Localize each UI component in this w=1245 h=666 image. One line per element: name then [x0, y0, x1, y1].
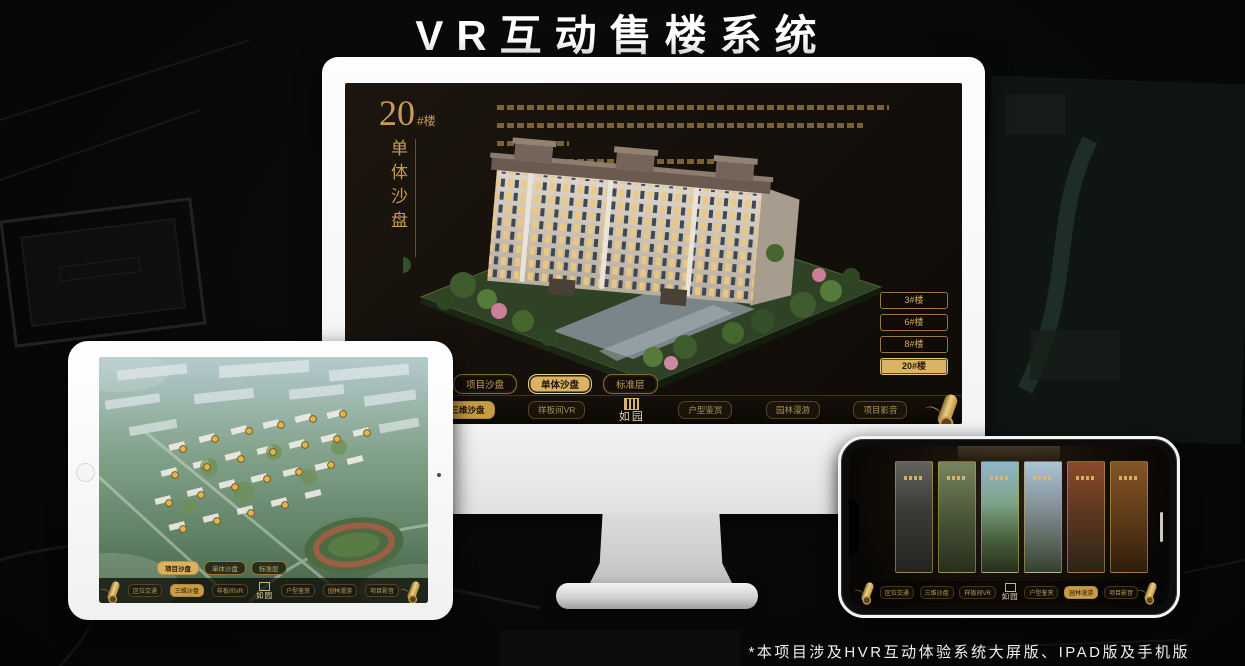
ipad-tab-standard-floor[interactable]: 标准层: [251, 561, 287, 575]
building-button-20[interactable]: 20#楼: [880, 358, 948, 375]
ipad-tab-project-sandtable[interactable]: 项目沙盘: [157, 561, 199, 575]
ipad-screen: 项目沙盘 单体沙盘 标准层 区位交通 三维沙盘 样板间VR 如园 户型鉴赏 园林…: [99, 357, 428, 603]
ipad-menu-bar: 区位交通 三维沙盘 样板间VR 如园 户型鉴赏 园林漫游 项目影音: [99, 578, 428, 603]
building-button-8[interactable]: 8#楼: [880, 336, 948, 353]
view-tabs: 项目沙盘 单体沙盘 标准层: [453, 374, 658, 394]
brand-logo: 如园: [256, 582, 273, 600]
brand-logo: 如园: [619, 398, 645, 423]
scroll-handle-icon[interactable]: [406, 580, 420, 601]
panel-caption: [947, 476, 967, 480]
ipad-menu-item-project-media[interactable]: 项目影音: [365, 584, 399, 597]
phone-notch: [849, 499, 859, 555]
menu-item-showflat-vr[interactable]: 样板间VR: [528, 401, 585, 419]
phone-menu-bar: 区位交通 三维沙盘 样板间VR 如园 户型鉴赏 园林漫游 项目影音: [857, 581, 1161, 603]
tab-standard-floor[interactable]: 标准层: [603, 374, 658, 394]
phone-menu-item-showflat-vr[interactable]: 样板间VR: [959, 586, 995, 599]
phone-device: 区位交通 三维沙盘 样板间VR 如园 户型鉴赏 园林漫游 项目影音: [838, 436, 1180, 618]
ipad-menu-item-3d-sandtable[interactable]: 三维沙盘: [170, 584, 204, 597]
gallery-panel[interactable]: [1024, 461, 1062, 573]
phone-home-indicator[interactable]: [1160, 512, 1163, 542]
building-button-3[interactable]: 3#楼: [880, 292, 948, 309]
scroll-handle-icon[interactable]: [860, 581, 874, 602]
tab-single-sandtable[interactable]: 单体沙盘: [528, 374, 592, 394]
building-selector: 3#楼 6#楼 8#楼 20#楼: [880, 292, 948, 375]
ipad-menu-item-garden-tour[interactable]: 园林漫游: [323, 584, 357, 597]
ipad-menu-item-location[interactable]: 区位交通: [128, 584, 162, 597]
panel-caption: [1033, 476, 1053, 480]
building-3d-render[interactable]: [403, 125, 893, 395]
scroll-handle-icon[interactable]: [1143, 581, 1157, 602]
ipad-tab-single-sandtable[interactable]: 单体沙盘: [204, 561, 246, 575]
gallery-panel[interactable]: [981, 461, 1019, 573]
scroll-handle-icon[interactable]: [936, 393, 959, 424]
brand-logo-text: 如园: [256, 592, 273, 600]
phone-screen: 区位交通 三维沙盘 样板间VR 如园 户型鉴赏 园林漫游 项目影音: [849, 446, 1169, 608]
monitor-stand-neck: [588, 513, 734, 587]
page: VR互动售楼系统 20#楼 单体沙盘: [0, 0, 1245, 666]
menu-item-floorplans[interactable]: 户型鉴赏: [678, 401, 732, 419]
brand-logo-text: 如园: [619, 412, 645, 423]
phone-menu-item-floorplans[interactable]: 户型鉴赏: [1024, 586, 1058, 599]
building-button-6[interactable]: 6#楼: [880, 314, 948, 331]
panel-caption: [904, 476, 924, 480]
menu-item-project-media[interactable]: 项目影音: [853, 401, 907, 419]
panel-caption: [990, 476, 1010, 480]
brand-seal-icon: [624, 398, 639, 410]
brand-seal-icon: [1005, 583, 1016, 592]
gallery-panel[interactable]: [1110, 461, 1148, 573]
panel-caption: [1119, 476, 1139, 480]
gallery-panel[interactable]: [1067, 461, 1105, 573]
phone-menu-item-garden-tour[interactable]: 园林漫游: [1064, 586, 1098, 599]
brand-logo-text: 如园: [1002, 593, 1019, 601]
brand-seal-icon: [259, 582, 270, 591]
gallery-panel[interactable]: [895, 461, 933, 573]
scroll-handle-icon[interactable]: [106, 580, 120, 601]
page-title: VR互动售楼系统: [0, 2, 1245, 63]
gallery-panel[interactable]: [938, 461, 976, 573]
ipad-home-button[interactable]: [76, 463, 95, 482]
phone-menu-item-location[interactable]: 区位交通: [880, 586, 914, 599]
monitor-stand-base: [556, 583, 758, 609]
brand-logo: 如园: [1002, 583, 1019, 601]
phone-menu-item-project-media[interactable]: 项目影音: [1104, 586, 1138, 599]
ipad-menu-item-floorplans[interactable]: 户型鉴赏: [281, 584, 315, 597]
footnote-text: *本项目涉及HVR互动体验系统大屏版、IPAD版及手机版: [749, 641, 1190, 662]
ipad-camera-icon: [437, 473, 441, 477]
scene-gallery: [895, 461, 1148, 573]
menu-item-garden-tour[interactable]: 园林漫游: [766, 401, 820, 419]
tab-project-sandtable[interactable]: 项目沙盘: [453, 374, 517, 394]
ipad-view-tabs: 项目沙盘 单体沙盘 标准层: [157, 561, 287, 575]
text-line: [497, 105, 889, 110]
ipad-menu-item-showflat-vr[interactable]: 样板间VR: [212, 584, 248, 597]
ceiling-beam-decoration: [958, 446, 1060, 462]
ipad-device: 项目沙盘 单体沙盘 标准层 区位交通 三维沙盘 样板间VR 如园 户型鉴赏 园林…: [68, 341, 453, 620]
phone-menu-item-3d-sandtable[interactable]: 三维沙盘: [920, 586, 954, 599]
panel-caption: [1076, 476, 1096, 480]
